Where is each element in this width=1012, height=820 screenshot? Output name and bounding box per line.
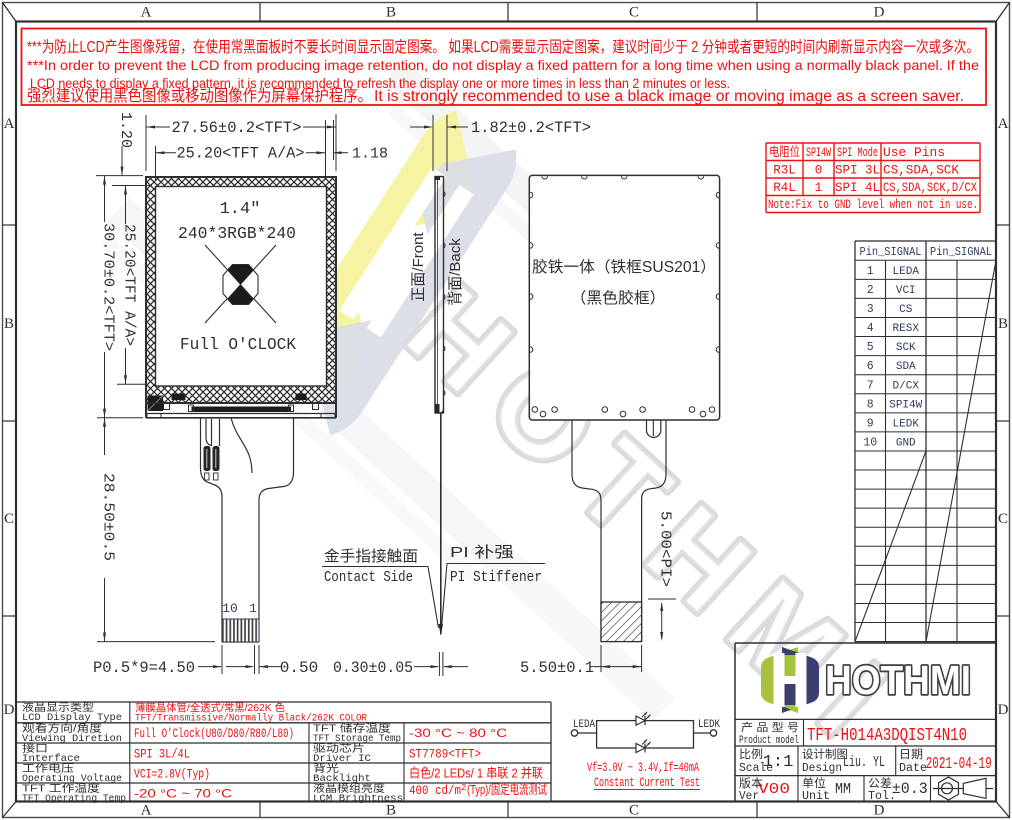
svg-text:LCM Brightness: LCM Brightness — [313, 793, 403, 805]
svg-text:D: D — [874, 5, 885, 21]
svg-text:Liu. YL: Liu. YL — [843, 754, 885, 771]
svg-text:3: 3 — [867, 303, 874, 316]
svg-text:白色/2 LEDs/ 1 串联 2 并联: 白色/2 LEDs/ 1 串联 2 并联 — [409, 766, 543, 781]
svg-text:SPI 3L/4L: SPI 3L/4L — [134, 747, 190, 762]
svg-text:TFT Operating Temp: TFT Operating Temp — [22, 793, 126, 805]
svg-text:TFT/Transmissive/Normally Blac: TFT/Transmissive/Normally Black/262K COL… — [135, 713, 368, 725]
svg-text:MM: MM — [835, 781, 851, 798]
svg-text:背面/Back: 背面/Back — [447, 238, 464, 306]
svg-text:胶铁一体（铁框SUS201）: 胶铁一体（铁框SUS201） — [532, 258, 716, 276]
svg-text:Full O'CLOCK: Full O'CLOCK — [180, 336, 297, 355]
svg-text:-20 °C ~ 70 °C: -20 °C ~ 70 °C — [134, 787, 232, 801]
svg-text:25.20<TFT A/A>: 25.20<TFT A/A> — [121, 224, 138, 346]
svg-text:SDA: SDA — [896, 361, 916, 373]
svg-text:C: C — [4, 511, 14, 527]
svg-text:（黑色胶框）: （黑色胶框） — [571, 289, 666, 307]
svg-text:A: A — [998, 116, 1009, 132]
svg-text:D/CX: D/CX — [893, 380, 920, 392]
svg-text:正面/Front: 正面/Front — [410, 232, 427, 302]
svg-text:***In order to prevent the LCD: ***In order to prevent the LCD from prod… — [27, 58, 979, 73]
svg-text:B: B — [386, 5, 396, 21]
svg-text:C: C — [998, 511, 1008, 527]
svg-text:CS,SDA,SCK: CS,SDA,SCK — [883, 163, 959, 178]
svg-text:It is strongly recommended to: It is strongly recommended to use a blac… — [374, 88, 964, 105]
svg-text:SCK: SCK — [896, 342, 916, 354]
svg-text:***为防止LCD产生图像残留，在使用常黑面板时不要长时间显: ***为防止LCD产生图像残留，在使用常黑面板时不要长时间显示固定图案。 如果L… — [27, 38, 979, 56]
svg-text:2: 2 — [867, 284, 874, 297]
svg-text:1: 1 — [815, 181, 823, 195]
svg-text:VCI: VCI — [896, 285, 916, 297]
svg-text:金手指接触面: 金手指接触面 — [324, 548, 418, 565]
svg-text:LEDA: LEDA — [893, 266, 920, 278]
svg-text:5.50±0.1: 5.50±0.1 — [520, 659, 594, 677]
svg-text:30.70±0.2<TFT>: 30.70±0.2<TFT> — [100, 223, 117, 351]
svg-text:C: C — [629, 803, 639, 819]
svg-text:SPI4W: SPI4W — [889, 399, 922, 411]
svg-text:2021-04-19: 2021-04-19 — [926, 754, 992, 773]
svg-text:1.82±0.2<TFT>: 1.82±0.2<TFT> — [471, 119, 591, 137]
svg-text:A: A — [4, 116, 15, 132]
svg-text:-30 °C ~ 80 °C: -30 °C ~ 80 °C — [409, 726, 507, 740]
svg-text:6: 6 — [867, 360, 874, 373]
svg-text:2: 2 — [461, 783, 466, 793]
svg-text:Contact Side: Contact Side — [324, 569, 413, 586]
svg-text:比例: 比例 — [739, 747, 763, 761]
svg-text:Product model: Product model — [739, 735, 799, 747]
svg-text:1:1: 1:1 — [763, 753, 794, 772]
svg-text:GND: GND — [896, 437, 916, 449]
svg-text:1: 1 — [249, 601, 257, 616]
svg-text:SPI Mode: SPI Mode — [837, 146, 878, 160]
svg-text:PI 补强: PI 补强 — [450, 544, 514, 561]
svg-text:C: C — [629, 5, 639, 21]
svg-text:LEDA: LEDA — [573, 719, 595, 731]
svg-text:1.18: 1.18 — [352, 146, 388, 163]
svg-text:9: 9 — [867, 417, 874, 430]
svg-text:1.4": 1.4" — [220, 200, 261, 219]
svg-text:4: 4 — [867, 322, 874, 335]
svg-text:Pin_SIGNAL: Pin_SIGNAL — [930, 245, 992, 259]
svg-text:HOTHMI: HOTHMI — [825, 657, 971, 703]
svg-text:设计制图: 设计制图 — [802, 748, 848, 761]
svg-text:(Typ)/固定电流测试: (Typ)/固定电流测试 — [467, 782, 547, 797]
svg-text:A: A — [141, 803, 152, 819]
svg-text:Pin_SIGNAL: Pin_SIGNAL — [860, 245, 922, 259]
svg-text:Date: Date — [899, 762, 927, 775]
svg-text:7: 7 — [867, 379, 874, 392]
svg-text:VCI=2.8V(Typ): VCI=2.8V(Typ) — [134, 767, 210, 782]
svg-text:TFT-H014A3DQIST4N10: TFT-H014A3DQIST4N10 — [807, 726, 967, 746]
svg-text:D: D — [4, 702, 15, 718]
svg-text:Design: Design — [802, 762, 842, 775]
svg-text:1: 1 — [867, 265, 874, 278]
svg-text:1.20: 1.20 — [117, 112, 134, 148]
svg-text:Ver: Ver — [739, 790, 759, 803]
svg-text:Vf=3.0V ~ 3.4V,If=40mA: Vf=3.0V ~ 3.4V,If=40mA — [587, 761, 699, 775]
svg-text:Note:Fix to GND level when not: Note:Fix to GND level when not in use. — [768, 197, 978, 212]
svg-text:±0.3: ±0.3 — [892, 780, 928, 798]
svg-text:B: B — [998, 316, 1008, 332]
svg-text:0.30±0.05: 0.30±0.05 — [333, 659, 413, 677]
svg-text:Constant Current Test: Constant Current Test — [594, 776, 700, 790]
svg-text:B: B — [4, 316, 14, 332]
svg-text:A: A — [141, 5, 152, 21]
svg-text:CS: CS — [899, 304, 913, 316]
svg-text:ST7789<TFT>: ST7789<TFT> — [409, 747, 481, 762]
svg-text:Full O'Clock(U80/D80/R80/L80): Full O'Clock(U80/D80/R80/L80) — [134, 726, 294, 741]
svg-text:Use Pins: Use Pins — [883, 145, 945, 160]
svg-text:电阻位: 电阻位 — [769, 144, 800, 159]
svg-text:D: D — [998, 702, 1009, 718]
svg-text:CS,SDA,SCK,D/CX: CS,SDA,SCK,D/CX — [883, 180, 977, 195]
svg-text:单位: 单位 — [802, 776, 826, 790]
svg-text:25.20<TFT A/A>: 25.20<TFT A/A> — [177, 145, 305, 163]
svg-text:10: 10 — [863, 436, 877, 449]
svg-text:SPI4W: SPI4W — [806, 146, 831, 160]
svg-text:日期: 日期 — [899, 748, 923, 761]
svg-text:28.50±0.5: 28.50±0.5 — [100, 473, 117, 561]
svg-text:RESX: RESX — [893, 323, 920, 335]
svg-text:0.50: 0.50 — [280, 659, 318, 677]
svg-text:SPI 3L: SPI 3L — [835, 164, 880, 178]
svg-text:R3L: R3L — [773, 164, 796, 178]
svg-text:V00: V00 — [758, 781, 790, 798]
svg-text:产 品 型 号: 产 品 型 号 — [741, 720, 799, 734]
svg-text:10: 10 — [222, 601, 238, 616]
svg-text:R4L: R4L — [773, 181, 796, 195]
svg-text:400 cd/m: 400 cd/m — [409, 783, 461, 798]
svg-text:8: 8 — [867, 398, 874, 411]
svg-text:5.00<PI>: 5.00<PI> — [657, 511, 674, 587]
svg-text:D: D — [874, 803, 885, 819]
svg-text:P0.5*9=4.50: P0.5*9=4.50 — [93, 659, 195, 677]
svg-text:Unit: Unit — [802, 790, 830, 803]
svg-text:LEDK: LEDK — [893, 418, 920, 430]
svg-text:5: 5 — [867, 341, 874, 354]
svg-text:公差: 公差 — [868, 776, 892, 790]
svg-text:强烈建议使用黑色图像或移动图像作为屏幕保护程序。: 强烈建议使用黑色图像或移动图像作为屏幕保护程序。 — [27, 87, 372, 105]
svg-text:SPI 4L: SPI 4L — [835, 181, 880, 195]
svg-text:PI Stiffener: PI Stiffener — [450, 569, 542, 586]
svg-text:27.56±0.2<TFT>: 27.56±0.2<TFT> — [172, 119, 302, 137]
svg-text:0: 0 — [815, 164, 823, 178]
svg-text:LEDK: LEDK — [698, 719, 720, 731]
svg-text:240*3RGB*240: 240*3RGB*240 — [178, 224, 296, 243]
